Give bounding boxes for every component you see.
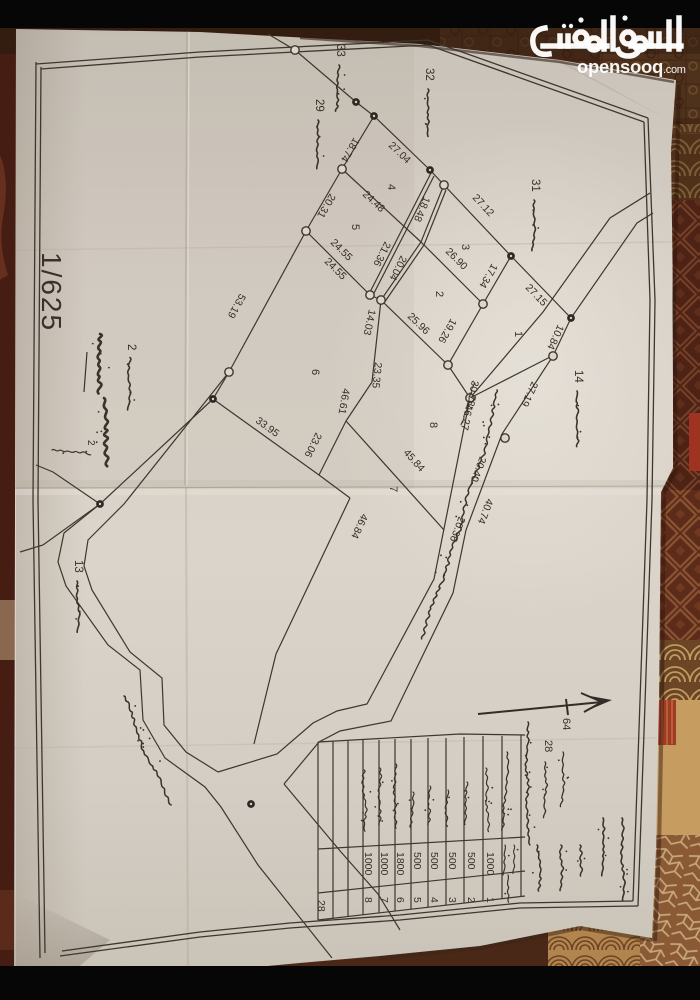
svg-text:6: 6: [309, 369, 321, 375]
svg-text:4: 4: [385, 184, 397, 190]
svg-text:64: 64: [560, 718, 572, 730]
svg-text:28: 28: [315, 900, 327, 912]
svg-text:5: 5: [349, 224, 361, 230]
svg-text:13: 13: [72, 560, 84, 573]
svg-text:1800: 1800: [394, 852, 406, 876]
svg-text:500: 500: [411, 852, 423, 870]
svg-text:6: 6: [394, 897, 406, 903]
svg-text:2: 2: [125, 344, 137, 350]
svg-text:2: 2: [465, 897, 477, 903]
svg-text:7: 7: [387, 486, 399, 492]
svg-text:33: 33: [334, 44, 346, 57]
svg-text:3: 3: [446, 897, 458, 903]
svg-text:2: 2: [85, 440, 96, 446]
svg-text:28: 28: [542, 740, 554, 752]
svg-text:1: 1: [484, 897, 496, 903]
svg-text:8: 8: [427, 422, 439, 428]
svg-text:2: 2: [433, 291, 445, 297]
svg-text:1000: 1000: [362, 852, 374, 876]
svg-text:5: 5: [411, 897, 423, 903]
svg-text:4: 4: [428, 897, 440, 903]
svg-text:7: 7: [378, 897, 390, 903]
svg-text:14: 14: [572, 370, 584, 383]
svg-text:31: 31: [529, 179, 541, 192]
svg-text:8: 8: [362, 897, 374, 903]
svg-text:1/625: 1/625: [36, 252, 67, 332]
svg-text:500: 500: [428, 852, 440, 870]
svg-text:1: 1: [512, 331, 524, 337]
svg-text:3: 3: [459, 244, 471, 250]
svg-text:500: 500: [446, 852, 458, 870]
svg-text:500: 500: [465, 852, 477, 870]
svg-text:29: 29: [313, 99, 325, 112]
svg-text:1000: 1000: [484, 852, 496, 876]
svg-text:1000: 1000: [378, 852, 390, 876]
svg-text:32: 32: [423, 68, 435, 81]
